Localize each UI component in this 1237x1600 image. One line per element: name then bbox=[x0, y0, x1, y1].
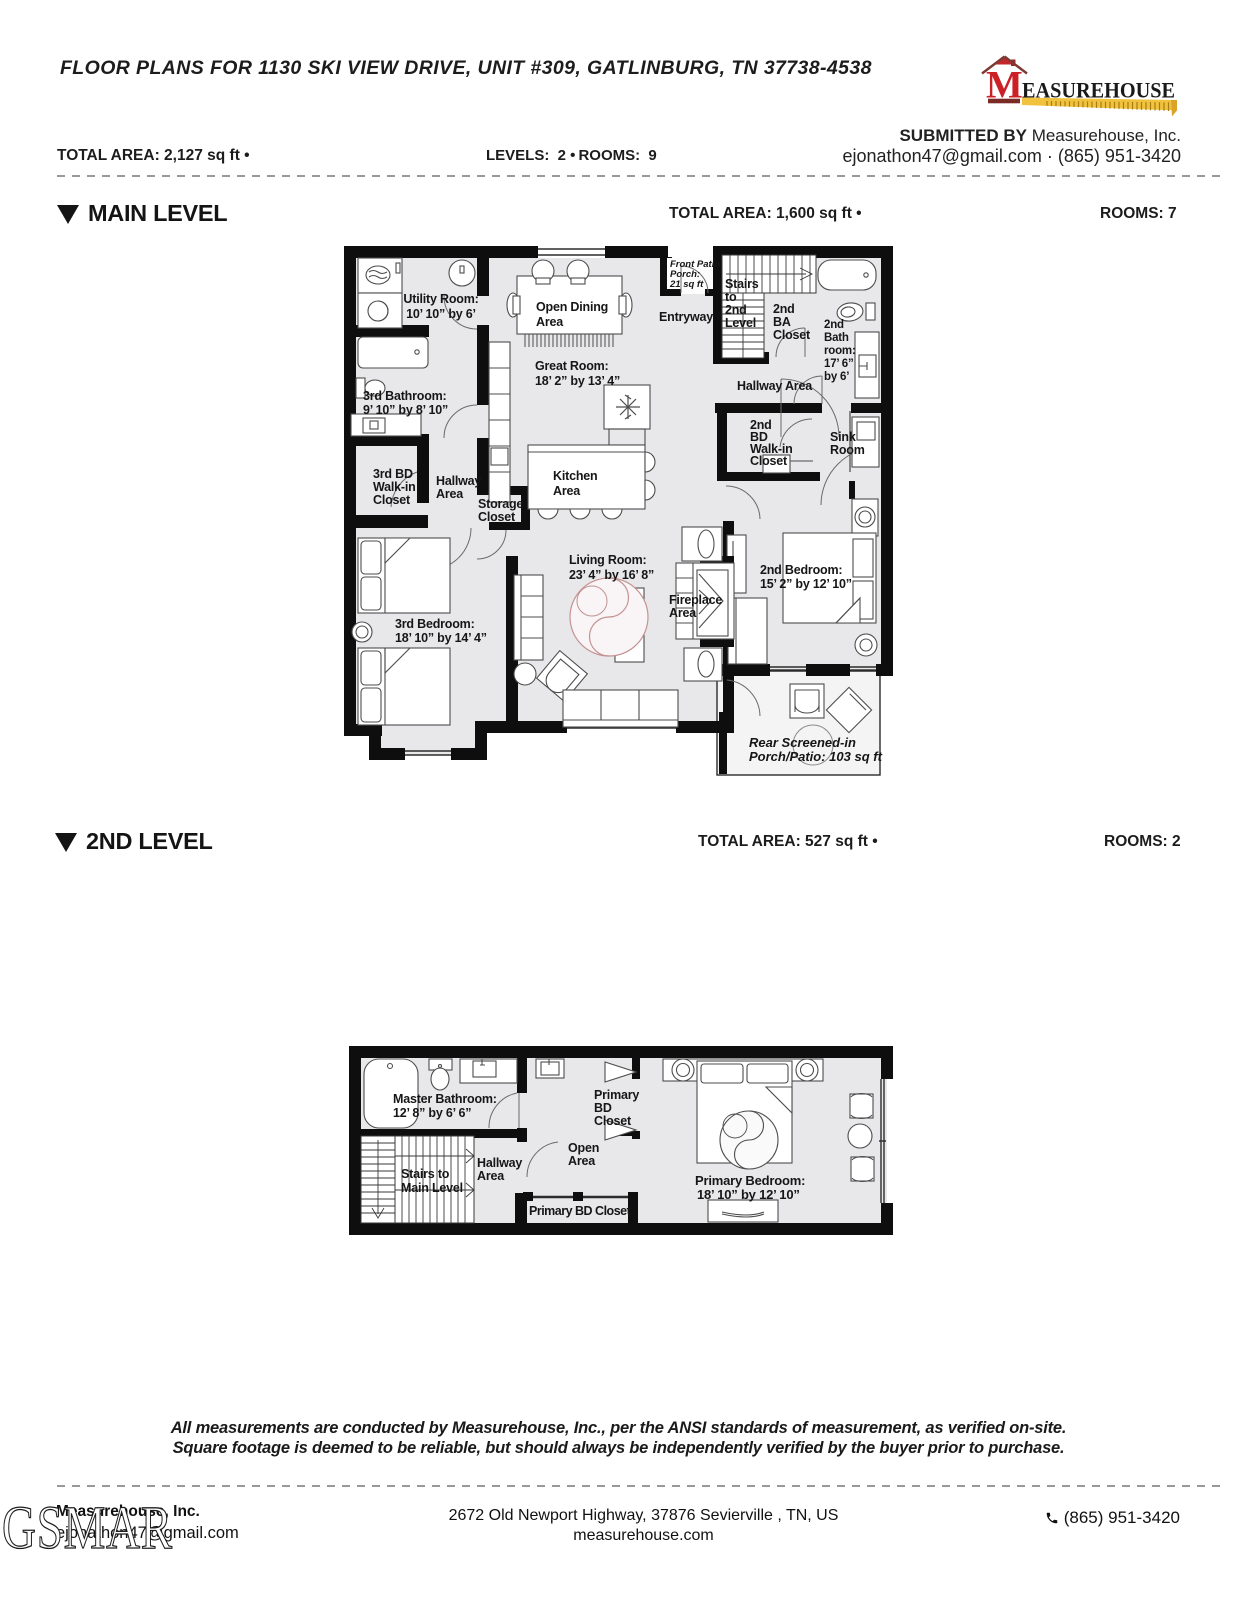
svg-text:2nd: 2nd bbox=[773, 302, 795, 316]
svg-text:Closet: Closet bbox=[750, 454, 788, 468]
svg-text:Walk-in: Walk-in bbox=[373, 480, 416, 494]
svg-text:Primary BD Closet: Primary BD Closet bbox=[529, 1204, 632, 1218]
svg-text:by 6’: by 6’ bbox=[824, 371, 849, 383]
svg-text:Primary Bedroom:: Primary Bedroom: bbox=[695, 1173, 805, 1188]
svg-text:21 sq ft: 21 sq ft bbox=[669, 279, 704, 290]
svg-text:Closet: Closet bbox=[478, 510, 516, 524]
svg-text:Sink: Sink bbox=[830, 430, 856, 444]
svg-text:room:: room: bbox=[824, 345, 856, 357]
svg-text:Living Room:: Living Room: bbox=[569, 553, 646, 567]
svg-text:15’ 2” by 12’ 10”: 15’ 2” by 12’ 10” bbox=[760, 577, 852, 591]
svg-text:Hallway: Hallway bbox=[436, 474, 481, 488]
svg-text:Area: Area bbox=[536, 315, 564, 329]
svg-text:Closet: Closet bbox=[373, 493, 411, 507]
svg-text:Fireplace: Fireplace bbox=[669, 593, 722, 607]
svg-text:3rd Bedroom:: 3rd Bedroom: bbox=[395, 617, 475, 631]
svg-text:Area: Area bbox=[477, 1169, 505, 1183]
svg-text:2nd: 2nd bbox=[824, 319, 844, 331]
svg-text:Area: Area bbox=[436, 487, 464, 501]
svg-text:Utility Room:: Utility Room: bbox=[403, 292, 478, 306]
svg-text:18’ 2” by 13’ 4”: 18’ 2” by 13’ 4” bbox=[535, 374, 620, 388]
svg-text:Area: Area bbox=[568, 1154, 596, 1168]
svg-text:Great Room:: Great Room: bbox=[535, 359, 609, 373]
svg-text:2nd Bedroom:: 2nd Bedroom: bbox=[760, 563, 842, 577]
svg-text:3rd BD: 3rd BD bbox=[373, 467, 413, 481]
svg-text:BA: BA bbox=[773, 315, 791, 329]
svg-text:9’ 10” by 8’ 10”: 9’ 10” by 8’ 10” bbox=[363, 403, 448, 417]
svg-text:Closet: Closet bbox=[594, 1114, 632, 1128]
svg-text:Storage: Storage bbox=[478, 497, 523, 511]
svg-text:Stairs: Stairs bbox=[725, 277, 759, 291]
svg-text:Master Bathroom:: Master Bathroom: bbox=[393, 1092, 497, 1106]
svg-text:Room: Room bbox=[830, 443, 865, 457]
svg-text:Open: Open bbox=[568, 1141, 599, 1155]
svg-text:Level: Level bbox=[725, 316, 756, 330]
svg-text:Hallway: Hallway bbox=[477, 1156, 522, 1170]
svg-text:Open Dining: Open Dining bbox=[536, 300, 608, 314]
svg-text:18’ 10” by 14’ 4”: 18’ 10” by 14’ 4” bbox=[395, 631, 487, 645]
svg-text:Entryway: Entryway bbox=[659, 310, 713, 324]
svg-text:Main Level: Main Level bbox=[401, 1181, 463, 1195]
svg-text:Bath: Bath bbox=[824, 332, 849, 344]
svg-text:Hallway Area: Hallway Area bbox=[737, 379, 813, 393]
svg-text:Kitchen: Kitchen bbox=[553, 469, 597, 483]
svg-text:23’ 4” by 16’ 8”: 23’ 4” by 16’ 8” bbox=[569, 568, 654, 582]
svg-text:Stairs to: Stairs to bbox=[401, 1167, 450, 1181]
svg-text:Rear Screened-in: Rear Screened-in bbox=[749, 735, 856, 750]
svg-text:Area: Area bbox=[669, 606, 697, 620]
svg-text:to: to bbox=[725, 290, 737, 304]
svg-text:Area: Area bbox=[553, 484, 581, 498]
svg-text:10’ 10” by 6’: 10’ 10” by 6’ bbox=[406, 307, 476, 321]
svg-text:Primary: Primary bbox=[594, 1088, 639, 1102]
svg-text:BD: BD bbox=[594, 1101, 612, 1115]
svg-text:18’ 10” by 12’ 10”: 18’ 10” by 12’ 10” bbox=[697, 1187, 800, 1202]
svg-text:Closet: Closet bbox=[773, 328, 811, 342]
svg-text:2nd: 2nd bbox=[725, 303, 747, 317]
svg-text:17’ 6”: 17’ 6” bbox=[824, 358, 854, 370]
svg-text:3rd Bathroom:: 3rd Bathroom: bbox=[363, 389, 447, 403]
svg-text:12’ 8” by 6’ 6”: 12’ 8” by 6’ 6” bbox=[393, 1106, 471, 1120]
svg-text:Porch/Patio: 103 sq ft: Porch/Patio: 103 sq ft bbox=[749, 749, 883, 764]
